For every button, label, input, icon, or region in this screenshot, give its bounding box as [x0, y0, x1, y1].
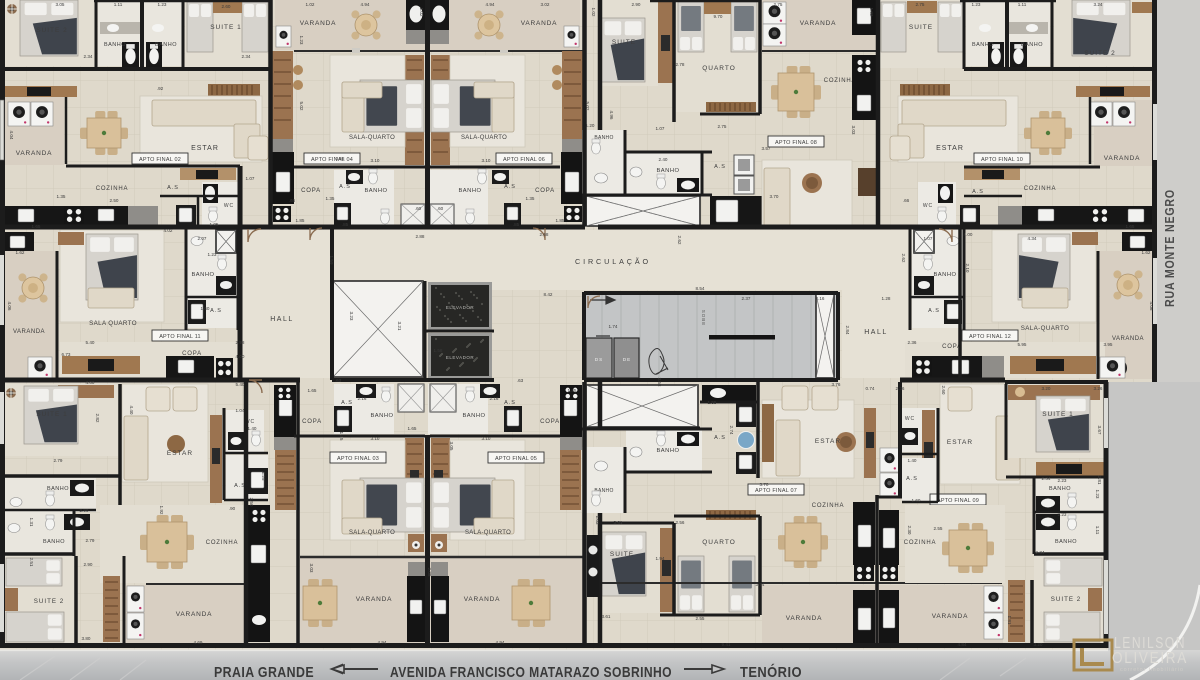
svg-text:APTO FINAL 11: APTO FINAL 11	[159, 334, 201, 340]
svg-text:COPA: COPA	[301, 188, 321, 194]
svg-text:A.S: A.S	[339, 184, 351, 190]
svg-text:SALA QUARTO: SALA QUARTO	[89, 320, 137, 327]
svg-text:BANHO: BANHO	[191, 272, 214, 278]
svg-text:.63: .63	[335, 378, 342, 383]
svg-text:3.70: 3.70	[770, 194, 779, 199]
svg-text:1.31: 1.31	[29, 518, 34, 527]
svg-text:3.03: 3.03	[851, 126, 856, 135]
svg-text:BANHO: BANHO	[1049, 486, 1071, 492]
svg-text:ESTAR: ESTAR	[936, 145, 964, 152]
svg-text:1.35: 1.35	[57, 194, 66, 199]
svg-text:4.96: 4.96	[609, 111, 614, 120]
svg-text:3.70: 3.70	[760, 482, 769, 487]
svg-text:APTO FINAL 06: APTO FINAL 06	[503, 157, 545, 163]
svg-text:BANHO: BANHO	[1021, 42, 1043, 48]
svg-text:2.07: 2.07	[198, 236, 207, 241]
svg-text:A.S: A.S	[972, 189, 984, 195]
svg-text:3.74: 3.74	[756, 582, 765, 587]
svg-text:4.84: 4.84	[958, 642, 967, 647]
svg-text:4.94: 4.94	[378, 640, 387, 645]
svg-text:ESTAR: ESTAR	[191, 145, 219, 152]
svg-text:4.00: 4.00	[964, 232, 973, 237]
svg-text:4.00: 4.00	[236, 354, 245, 359]
svg-text:APTO FINAL 07: APTO FINAL 07	[755, 488, 797, 494]
svg-text:COZINHA: COZINHA	[206, 540, 239, 546]
svg-text:WC: WC	[923, 203, 933, 209]
svg-text:1.23: 1.23	[1095, 490, 1100, 499]
svg-text:2.37: 2.37	[742, 296, 751, 301]
svg-text:2.34: 2.34	[84, 54, 93, 59]
svg-text:1.85: 1.85	[568, 388, 577, 393]
svg-text:1.07: 1.07	[924, 236, 933, 241]
svg-text:1.58: 1.58	[434, 348, 443, 353]
svg-text:1.40: 1.40	[908, 458, 917, 463]
svg-text:2.68: 2.68	[540, 232, 549, 237]
svg-text:COZINHA: COZINHA	[824, 78, 857, 84]
svg-text:1.11: 1.11	[1095, 526, 1100, 535]
svg-text:SUITE 2: SUITE 2	[36, 27, 68, 34]
svg-text:2.55: 2.55	[696, 616, 705, 621]
svg-text:1.20: 1.20	[586, 123, 595, 128]
svg-text:3.24: 3.24	[1094, 2, 1103, 7]
svg-text:1.02: 1.02	[419, 8, 424, 17]
svg-text:3.03: 3.03	[309, 564, 314, 573]
svg-text:VARANDA: VARANDA	[1112, 336, 1144, 342]
svg-text:RUA MONTE NEGRO: RUA MONTE NEGRO	[1162, 189, 1177, 307]
svg-text:VARANDA: VARANDA	[356, 596, 393, 603]
svg-text:6.73: 6.73	[62, 352, 71, 357]
svg-text:1.23: 1.23	[158, 2, 167, 7]
svg-text:3.20: 3.20	[1042, 386, 1051, 391]
svg-text:BANHO: BANHO	[458, 188, 481, 194]
svg-text:COZINHA: COZINHA	[904, 540, 937, 546]
svg-text:1.60: 1.60	[912, 498, 921, 503]
svg-text:1.04: 1.04	[236, 408, 245, 413]
svg-text:2.78: 2.78	[676, 62, 685, 67]
svg-text:1.35: 1.35	[526, 196, 535, 201]
svg-text:3.10: 3.10	[371, 436, 380, 441]
svg-text:3.68: 3.68	[336, 156, 345, 161]
svg-text:1.07: 1.07	[656, 126, 665, 131]
svg-text:1.40: 1.40	[248, 426, 257, 431]
svg-text:3.57: 3.57	[762, 146, 771, 151]
svg-text:4.94: 4.94	[486, 2, 495, 7]
svg-text:COPA: COPA	[540, 419, 560, 425]
svg-text:QUARTO: QUARTO	[702, 539, 736, 546]
svg-text:3.10: 3.10	[482, 158, 491, 163]
svg-text:9.41: 9.41	[722, 642, 731, 647]
svg-text:VARANDA: VARANDA	[1104, 155, 1141, 162]
svg-text:DE: DE	[623, 357, 631, 362]
svg-text:ESTAR: ESTAR	[815, 438, 841, 445]
svg-text:ELEVADOR: ELEVADOR	[446, 355, 474, 360]
svg-text:2.16: 2.16	[358, 396, 367, 401]
svg-text:COZINHA: COZINHA	[1024, 186, 1057, 192]
svg-text:3.05: 3.05	[449, 442, 454, 451]
svg-text:SALA-QUARTO: SALA-QUARTO	[465, 530, 511, 536]
svg-text:APTO FINAL 05: APTO FINAL 05	[495, 456, 537, 462]
svg-text:1.92: 1.92	[159, 506, 164, 515]
svg-text:SUITE 2: SUITE 2	[1051, 596, 1081, 603]
svg-text:1.03: 1.03	[595, 516, 600, 525]
svg-text:2.60: 2.60	[222, 4, 231, 9]
svg-text:2.36: 2.36	[896, 386, 905, 391]
svg-text:3.10: 3.10	[482, 436, 491, 441]
svg-text:9.70: 9.70	[714, 14, 723, 19]
svg-text:COZINHA: COZINHA	[812, 503, 845, 509]
svg-text:0.74: 0.74	[866, 386, 875, 391]
svg-text:HALL: HALL	[864, 329, 888, 336]
svg-text:2.16: 2.16	[490, 396, 499, 401]
svg-text:1.45: 1.45	[339, 432, 344, 441]
svg-text:BANHO: BANHO	[370, 413, 393, 419]
svg-text:VARANDA: VARANDA	[521, 20, 558, 27]
svg-text:2.81: 2.81	[1097, 476, 1102, 485]
svg-text:2.62: 2.62	[901, 254, 906, 263]
svg-text:1.65: 1.65	[408, 426, 417, 431]
svg-text:A.S: A.S	[714, 164, 726, 170]
svg-text:.85: .85	[342, 222, 349, 227]
svg-text:VARANDA: VARANDA	[16, 150, 53, 157]
svg-text:APTO FINAL 08: APTO FINAL 08	[775, 140, 817, 146]
svg-text:1.11: 1.11	[114, 2, 123, 7]
svg-text:.63: .63	[517, 378, 524, 383]
svg-text:2.90: 2.90	[80, 508, 89, 513]
svg-text:1.02: 1.02	[869, 8, 874, 17]
svg-text:3.61: 3.61	[614, 520, 623, 525]
svg-text:A.S: A.S	[210, 308, 222, 314]
svg-text:A.S: A.S	[906, 476, 918, 482]
svg-text:4.06: 4.06	[7, 302, 12, 311]
svg-text:SALA-QUARTO: SALA-QUARTO	[461, 135, 507, 141]
svg-text:5.02: 5.02	[585, 102, 590, 111]
svg-text:.85: .85	[513, 222, 520, 227]
svg-text:2.34: 2.34	[242, 54, 251, 59]
svg-text:3.95: 3.95	[1104, 342, 1113, 347]
svg-text:3.10: 3.10	[371, 158, 380, 163]
svg-text:2.90: 2.90	[84, 562, 93, 567]
svg-text:4.02: 4.02	[164, 228, 173, 233]
svg-text:1.85: 1.85	[296, 218, 305, 223]
svg-text:2.16: 2.16	[816, 296, 825, 301]
svg-text:1.35: 1.35	[326, 196, 335, 201]
svg-text:BANHO: BANHO	[364, 188, 387, 194]
svg-text:TENÓRIO: TENÓRIO	[740, 663, 802, 680]
svg-text:.90: .90	[229, 506, 236, 511]
svg-text:COPA: COPA	[535, 188, 555, 194]
svg-text:A.S: A.S	[714, 435, 726, 441]
svg-text:APTO FINAL 12: APTO FINAL 12	[969, 334, 1011, 340]
svg-text:2.82: 2.82	[95, 414, 100, 423]
svg-text:BANHO: BANHO	[1055, 539, 1077, 545]
svg-text:VARANDA: VARANDA	[176, 611, 213, 618]
svg-text:2.23: 2.23	[1058, 478, 1067, 483]
svg-text:BANHO: BANHO	[462, 413, 485, 419]
svg-text:3.61: 3.61	[602, 614, 611, 619]
svg-text:AVENIDA FRANCISCO MATARAZO SOB: AVENIDA FRANCISCO MATARAZO SOBRINHO	[390, 664, 672, 680]
svg-text:HALL: HALL	[270, 316, 294, 323]
svg-text:BANHO: BANHO	[656, 448, 679, 454]
svg-text:1.65: 1.65	[308, 388, 317, 393]
svg-text:4.04: 4.04	[9, 131, 14, 140]
svg-text:APTO FINAL 02: APTO FINAL 02	[139, 157, 181, 163]
svg-text:2.08: 2.08	[427, 568, 432, 577]
svg-text:.66: .66	[289, 198, 296, 203]
svg-text:SUITE 2: SUITE 2	[34, 598, 64, 605]
svg-text:A.S: A.S	[504, 184, 516, 190]
svg-text:.60: .60	[415, 206, 422, 211]
svg-text:2.84: 2.84	[845, 326, 850, 335]
svg-text:3.21: 3.21	[397, 322, 402, 331]
svg-text:WC: WC	[224, 203, 234, 209]
svg-text:1.25: 1.25	[261, 472, 266, 481]
svg-text:2.75: 2.75	[916, 2, 925, 7]
svg-text:SUITE: SUITE	[612, 39, 636, 46]
svg-text:BANHO: BANHO	[155, 42, 177, 48]
svg-text:1.02: 1.02	[591, 8, 596, 17]
svg-text:SUITE: SUITE	[610, 551, 634, 558]
svg-text:5.40: 5.40	[236, 382, 245, 387]
svg-text:CIRCULAÇÃO: CIRCULAÇÃO	[575, 257, 651, 266]
svg-text:2.40: 2.40	[659, 157, 668, 162]
svg-text:4.00: 4.00	[86, 380, 95, 385]
svg-text:1.85: 1.85	[556, 218, 565, 223]
svg-text:.66: .66	[903, 198, 910, 203]
svg-text:ELEVADOR: ELEVADOR	[446, 305, 474, 310]
svg-text:2.58: 2.58	[657, 378, 662, 387]
svg-text:SUITE: SUITE	[909, 24, 933, 31]
svg-text:COZINHA: COZINHA	[96, 186, 129, 192]
svg-text:2.88: 2.88	[416, 234, 425, 239]
svg-text:APTO FINAL 10: APTO FINAL 10	[981, 157, 1023, 163]
svg-text:VARANDA: VARANDA	[932, 613, 969, 620]
svg-text:2.36: 2.36	[908, 340, 917, 345]
svg-text:4.94: 4.94	[496, 640, 505, 645]
svg-text:3.20: 3.20	[1034, 642, 1043, 647]
svg-text:1.81: 1.81	[1007, 616, 1012, 625]
svg-text:BANHO: BANHO	[43, 539, 65, 545]
svg-text:2.75: 2.75	[774, 2, 783, 7]
svg-text:1.55: 1.55	[708, 400, 717, 405]
svg-text:2.50: 2.50	[110, 198, 119, 203]
svg-text:corretor imobiliário: corretor imobiliário	[1120, 667, 1184, 673]
svg-text:5.95: 5.95	[1018, 342, 1027, 347]
svg-text:ESTAR: ESTAR	[947, 439, 973, 446]
svg-text:A.S: A.S	[167, 185, 179, 191]
svg-text:APTO FINAL 04: APTO FINAL 04	[311, 157, 353, 163]
svg-text:1.59: 1.59	[329, 256, 334, 265]
svg-text:A.S: A.S	[504, 400, 516, 406]
svg-text:1.28: 1.28	[882, 296, 891, 301]
svg-text:1.65: 1.65	[1126, 224, 1135, 229]
svg-text:VARANDA: VARANDA	[464, 596, 501, 603]
svg-text:BANHO: BANHO	[656, 168, 679, 174]
svg-text:2.30: 2.30	[907, 526, 912, 535]
svg-text:SUITE 1: SUITE 1	[36, 411, 68, 418]
svg-text:APTO FINAL 09: APTO FINAL 09	[937, 498, 979, 504]
svg-text:SOBE: SOBE	[701, 310, 706, 327]
svg-text:2.62: 2.62	[677, 236, 682, 245]
svg-text:.92: .92	[157, 86, 164, 91]
svg-text:QUARTO: QUARTO	[702, 65, 736, 72]
svg-text:4.94: 4.94	[361, 2, 370, 7]
svg-text:1.05: 1.05	[210, 222, 219, 227]
svg-text:2.56: 2.56	[676, 520, 685, 525]
svg-text:SALA-QUARTO: SALA-QUARTO	[349, 530, 395, 536]
svg-text:2.79: 2.79	[54, 458, 63, 463]
svg-text:2.50: 2.50	[249, 498, 254, 507]
svg-text:1.23: 1.23	[299, 36, 304, 45]
svg-text:2.90: 2.90	[632, 2, 641, 7]
svg-text:2.51: 2.51	[29, 558, 34, 567]
svg-text:1.23: 1.23	[208, 252, 217, 257]
svg-text:2.60: 2.60	[941, 386, 946, 395]
svg-text:8.54: 8.54	[696, 286, 705, 291]
svg-text:APTO FINAL 03: APTO FINAL 03	[337, 456, 379, 462]
svg-text:2.23: 2.23	[1058, 512, 1067, 517]
svg-text:1.23: 1.23	[972, 2, 981, 7]
svg-text:2.10: 2.10	[965, 264, 970, 273]
svg-text:1.02: 1.02	[306, 2, 315, 7]
svg-text:WC: WC	[905, 416, 915, 422]
svg-text:3.05: 3.05	[56, 2, 65, 7]
svg-text:4.06: 4.06	[1149, 302, 1154, 311]
svg-text:2.34: 2.34	[1042, 476, 1051, 481]
svg-text:3.80: 3.80	[82, 636, 91, 641]
svg-text:2.74: 2.74	[729, 426, 734, 435]
svg-text:2.34: 2.34	[1036, 550, 1045, 555]
svg-text:SUITE 1: SUITE 1	[210, 24, 242, 31]
svg-text:2.98: 2.98	[236, 340, 245, 345]
svg-text:1.62: 1.62	[1142, 250, 1151, 255]
svg-text:BANHO: BANHO	[972, 42, 994, 48]
svg-text:2.75: 2.75	[718, 124, 727, 129]
svg-text:1.62: 1.62	[16, 250, 25, 255]
svg-text:SUITE 1: SUITE 1	[1042, 411, 1074, 418]
svg-text:2.79: 2.79	[86, 538, 95, 543]
svg-text:4.34: 4.34	[1028, 236, 1037, 241]
svg-text:ESTAR: ESTAR	[167, 450, 193, 457]
svg-text:4.69: 4.69	[194, 640, 203, 645]
svg-text:3.26: 3.26	[1094, 386, 1103, 391]
svg-text:A.S: A.S	[341, 400, 353, 406]
svg-text:COPA: COPA	[302, 419, 322, 425]
svg-text:DS: DS	[595, 357, 603, 362]
svg-text:OLIVEIRA: OLIVEIRA	[1112, 650, 1188, 667]
svg-text:VARANDA: VARANDA	[13, 329, 45, 335]
svg-text:3.23: 3.23	[349, 312, 354, 321]
svg-text:PRAIA GRANDE: PRAIA GRANDE	[214, 664, 314, 680]
svg-text:1.11: 1.11	[1018, 2, 1027, 7]
svg-text:8.42: 8.42	[544, 292, 553, 297]
svg-text:1.60: 1.60	[201, 306, 210, 311]
svg-text:BANHO: BANHO	[933, 272, 956, 278]
svg-text:VARANDA: VARANDA	[800, 20, 837, 27]
svg-text:BANHO: BANHO	[104, 42, 126, 48]
svg-text:.60: .60	[437, 206, 444, 211]
svg-text:2.55: 2.55	[934, 526, 943, 531]
svg-text:VARANDA: VARANDA	[786, 615, 823, 622]
svg-text:1.74: 1.74	[609, 324, 618, 329]
svg-text:3.67: 3.67	[1097, 426, 1102, 435]
svg-text:3.02: 3.02	[541, 2, 550, 7]
svg-text:1.65: 1.65	[32, 224, 41, 229]
svg-text:SALA-QUARTO: SALA-QUARTO	[349, 135, 395, 141]
svg-text:SALA-QUARTO: SALA-QUARTO	[1021, 325, 1070, 332]
svg-text:3.76: 3.76	[832, 382, 841, 387]
svg-text:A.S: A.S	[928, 308, 940, 314]
svg-text:4.40: 4.40	[129, 406, 134, 415]
svg-text:SUITE 2: SUITE 2	[1084, 50, 1116, 57]
svg-text:1.07: 1.07	[246, 176, 255, 181]
svg-text:5.40: 5.40	[86, 340, 95, 345]
svg-text:VARANDA: VARANDA	[300, 20, 337, 27]
svg-text:5.02: 5.02	[299, 102, 304, 111]
svg-text:1.94: 1.94	[656, 556, 665, 561]
